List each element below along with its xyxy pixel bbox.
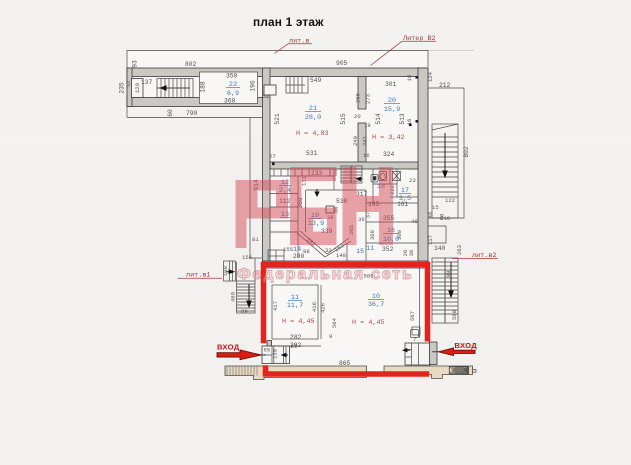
- svg-text:27: 27: [269, 153, 276, 160]
- svg-text:790: 790: [186, 110, 198, 117]
- svg-text:155: 155: [283, 246, 293, 253]
- svg-text:93: 93: [132, 60, 139, 68]
- svg-text:ВХОД: ВХОД: [455, 341, 478, 350]
- svg-text:20: 20: [354, 113, 361, 120]
- svg-text:124: 124: [427, 71, 434, 82]
- svg-text:81: 81: [252, 236, 259, 243]
- svg-text:514: 514: [375, 113, 382, 125]
- svg-text:Н = 3,42: Н = 3,42: [372, 134, 405, 142]
- svg-text:46: 46: [411, 218, 418, 225]
- svg-text:161: 161: [397, 201, 409, 208]
- svg-text:Н = 4,45: Н = 4,45: [282, 318, 315, 326]
- svg-text:352: 352: [382, 246, 394, 253]
- svg-text:Федеральная сеть: Федеральная сеть: [237, 266, 414, 283]
- svg-text:139: 139: [272, 349, 279, 359]
- svg-text:426: 426: [320, 303, 327, 313]
- svg-text:280: 280: [293, 253, 305, 260]
- svg-text:15: 15: [432, 204, 439, 211]
- svg-text:лит.в: лит.в: [289, 38, 309, 46]
- svg-text:23: 23: [409, 177, 416, 184]
- svg-text:350: 350: [226, 73, 238, 80]
- svg-text:241: 241: [362, 135, 369, 146]
- svg-text:148: 148: [336, 252, 346, 259]
- svg-text:108: 108: [222, 266, 229, 276]
- svg-text:273: 273: [365, 94, 372, 104]
- svg-text:212: 212: [439, 82, 451, 89]
- svg-text:117: 117: [427, 235, 434, 245]
- svg-text:156: 156: [242, 254, 252, 261]
- svg-text:48: 48: [439, 214, 446, 221]
- svg-text:416: 416: [311, 302, 318, 312]
- svg-text:564: 564: [331, 317, 338, 328]
- svg-text:266: 266: [355, 93, 362, 103]
- svg-text:567: 567: [409, 311, 416, 321]
- svg-text:905: 905: [336, 60, 348, 67]
- svg-text:29: 29: [291, 343, 298, 350]
- svg-text:140: 140: [434, 245, 446, 252]
- svg-text:588: 588: [451, 310, 458, 320]
- svg-text:33: 33: [325, 247, 332, 254]
- svg-text:Н = 4,83: Н = 4,83: [296, 130, 329, 138]
- svg-text:89: 89: [445, 271, 452, 278]
- svg-text:282: 282: [290, 334, 302, 341]
- svg-text:7: 7: [413, 336, 416, 343]
- svg-text:417: 417: [272, 301, 279, 311]
- svg-text:30: 30: [408, 249, 415, 256]
- svg-text:469: 469: [230, 292, 237, 302]
- svg-text:план 1 этаж: план 1 этаж: [253, 15, 324, 29]
- svg-text:521: 521: [274, 113, 281, 125]
- svg-text:263: 263: [456, 245, 463, 255]
- svg-text:ВХОД: ВХОД: [217, 343, 240, 352]
- svg-text:196: 196: [250, 80, 257, 92]
- svg-text:60: 60: [167, 109, 174, 117]
- svg-text:235: 235: [119, 82, 126, 94]
- svg-text:15: 15: [356, 248, 364, 256]
- svg-text:65: 65: [264, 347, 271, 354]
- svg-text:802: 802: [463, 146, 470, 158]
- svg-text:28,0: 28,0: [305, 114, 321, 122]
- svg-text:249: 249: [352, 136, 359, 146]
- svg-text:122: 122: [445, 197, 455, 204]
- svg-text:188: 188: [200, 81, 207, 93]
- svg-text:515: 515: [340, 113, 347, 125]
- svg-text:16: 16: [363, 152, 370, 159]
- svg-text:19: 19: [364, 122, 371, 129]
- svg-text:513: 513: [399, 113, 406, 125]
- svg-text:324: 324: [383, 151, 395, 158]
- svg-text:15,9: 15,9: [384, 106, 400, 114]
- svg-text:531: 531: [306, 150, 318, 157]
- svg-text:37: 37: [365, 212, 372, 219]
- svg-text:Н = 4,45: Н = 4,45: [352, 319, 385, 327]
- svg-text:300: 300: [369, 229, 376, 240]
- svg-text:137: 137: [141, 79, 153, 86]
- svg-text:36,7: 36,7: [368, 301, 384, 309]
- svg-text:89: 89: [241, 308, 248, 315]
- svg-text:11: 11: [366, 245, 374, 253]
- svg-text:46: 46: [427, 212, 434, 219]
- svg-text:549: 549: [310, 77, 322, 84]
- svg-text:802: 802: [185, 61, 197, 68]
- svg-text:129: 129: [134, 83, 141, 93]
- svg-text:11,7: 11,7: [287, 302, 303, 310]
- svg-text:300: 300: [396, 229, 403, 240]
- svg-text:360: 360: [224, 98, 236, 105]
- svg-text:9: 9: [329, 333, 332, 340]
- svg-text:Литер В2: Литер В2: [403, 35, 436, 43]
- svg-text:53: 53: [126, 81, 132, 87]
- svg-text:301: 301: [385, 81, 397, 88]
- svg-text:16: 16: [406, 75, 413, 82]
